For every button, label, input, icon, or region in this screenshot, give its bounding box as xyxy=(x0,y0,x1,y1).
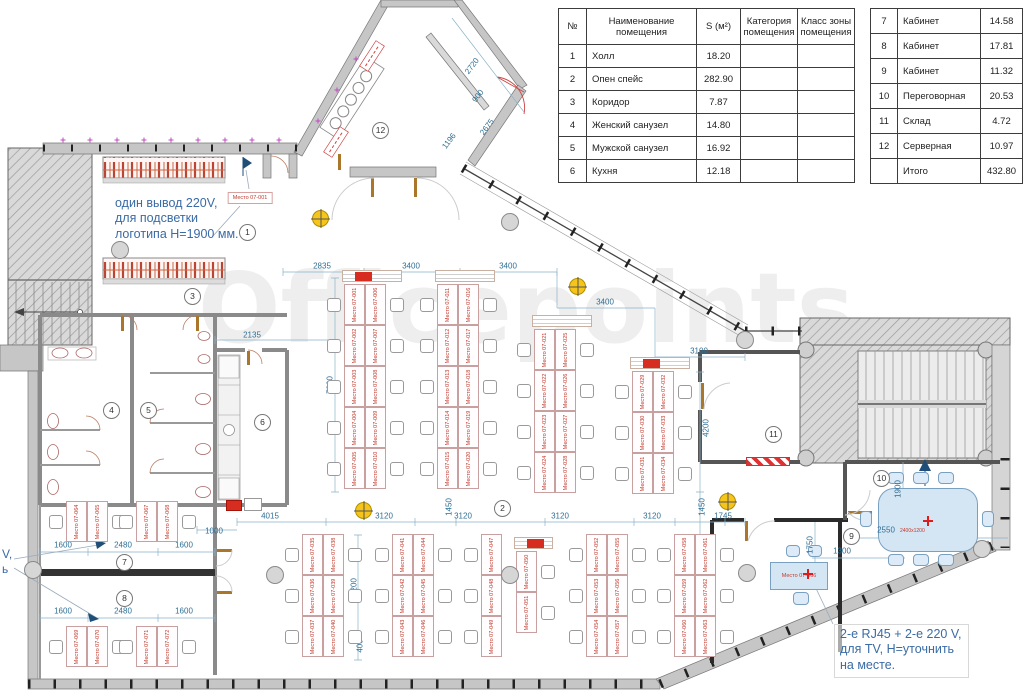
desk: Место 07-062 xyxy=(695,575,716,616)
desk-group-label-box xyxy=(630,357,690,369)
chair xyxy=(580,466,594,480)
desk-label: Место 07-058 xyxy=(682,537,688,572)
chair xyxy=(517,466,531,480)
desk-label: Место 07-015 xyxy=(445,451,451,486)
survey-marker xyxy=(569,278,586,295)
table-cell: 7.87 xyxy=(697,91,741,114)
chair xyxy=(375,548,389,562)
table-row: 3Коридор7.87 xyxy=(559,91,855,114)
chair xyxy=(420,380,434,394)
rooms-table-continued: 7Кабинет14.588Кабинет17.819Кабинет11.321… xyxy=(870,8,1023,184)
desk-group-label-box xyxy=(435,270,495,282)
desk-label: Место 07-025 xyxy=(563,332,569,367)
desk-label: Место 07-004 xyxy=(352,410,358,445)
desk: Место 07-058 xyxy=(674,534,695,575)
chair xyxy=(390,298,404,312)
desk-label: Место 07-003 xyxy=(352,369,358,404)
desk: Место 07-019 xyxy=(458,407,479,448)
chair xyxy=(615,426,629,440)
desk-label: Место 07-043 xyxy=(400,619,406,654)
chair xyxy=(420,462,434,476)
desk-label: Место 07-022 xyxy=(542,373,548,408)
table-cell xyxy=(798,137,855,160)
desk: Место 07-044 xyxy=(413,534,434,575)
dimension-label: 3400 xyxy=(596,298,614,307)
table-cell: 18.20 xyxy=(697,45,741,68)
structural-column xyxy=(736,331,754,349)
desk-label: Место 07-038 xyxy=(331,537,337,572)
structural-column xyxy=(501,566,519,584)
survey-marker xyxy=(719,493,736,510)
table-row: 11Склад4.72 xyxy=(871,109,1023,134)
desk: Место 07-063 xyxy=(695,616,716,657)
desk-label: Место 07-053 xyxy=(594,578,600,613)
desk-label: Место 07-072 xyxy=(165,629,171,664)
table-cell: 3 xyxy=(559,91,587,114)
chair xyxy=(657,589,671,603)
desk-label: Место 07-021 xyxy=(542,332,548,367)
room-number-circle: 8 xyxy=(116,590,133,607)
chair xyxy=(182,515,196,529)
equipment-marker xyxy=(226,500,242,511)
chair xyxy=(420,339,434,353)
table-cell: 8 xyxy=(871,34,898,59)
desk-label: Место 07-037 xyxy=(310,619,316,654)
dimension-label: 3120 xyxy=(375,512,393,521)
chair xyxy=(657,548,671,562)
desk: Место 07-015 xyxy=(437,448,458,489)
structural-column xyxy=(24,561,42,579)
desk-label: Место 07-060 xyxy=(682,619,688,654)
desk: Место 07-006 xyxy=(365,284,386,325)
desk: Место 07-036 xyxy=(302,575,323,616)
desk: Место 07-027 xyxy=(555,411,576,452)
table-cell xyxy=(798,160,855,183)
desk-label: Место 07-057 xyxy=(615,619,621,654)
desk: Место 07-043 xyxy=(392,616,413,657)
desk-label: Место 07-027 xyxy=(563,414,569,449)
chair xyxy=(632,589,646,603)
table-cell: Женский санузел xyxy=(587,114,697,137)
table-cell: 12 xyxy=(871,134,898,159)
table-row: 8Кабинет17.81 xyxy=(871,34,1023,59)
desk: Место 07-016 xyxy=(458,284,479,325)
desk-label: Место 07-048 xyxy=(489,578,495,613)
desk-label: Место 07-051 xyxy=(524,595,530,630)
chair xyxy=(438,548,452,562)
dimension-label: 4015 xyxy=(261,512,279,521)
dimension-label: 1196 xyxy=(440,131,458,150)
desk: Место 07-040 xyxy=(323,616,344,657)
desk-label: Место 07-028 xyxy=(563,455,569,490)
table-cell: Итого xyxy=(898,159,981,184)
table-cell xyxy=(798,68,855,91)
table-cell: 12.18 xyxy=(697,160,741,183)
table-cell: Мужской санузел xyxy=(587,137,697,160)
chair xyxy=(483,339,497,353)
chair xyxy=(119,640,133,654)
table-cell: 10 xyxy=(871,84,898,109)
desk-label: Место 07-001 xyxy=(352,287,358,322)
dimension-label: 2720 xyxy=(463,56,481,76)
dimension-label: 2135 xyxy=(243,331,261,340)
room-number-circle: 1 xyxy=(239,224,256,241)
desk-label: Место 07-011 xyxy=(445,287,451,321)
desk-group-red-marker xyxy=(355,272,372,281)
table-cell xyxy=(741,114,798,137)
chair xyxy=(580,425,594,439)
dimension-label: 4200 xyxy=(702,419,711,437)
table-cell xyxy=(741,68,798,91)
dimension-label: 3400 xyxy=(402,262,420,271)
chair xyxy=(632,630,646,644)
chair xyxy=(285,630,299,644)
chair xyxy=(327,421,341,435)
desk-label: Место 07-056 xyxy=(615,578,621,613)
room-number-circle: 3 xyxy=(184,288,201,305)
chair xyxy=(327,380,341,394)
desk-label: Место 07-039 xyxy=(331,578,337,613)
table-row: 5Мужской санузел16.92 xyxy=(559,137,855,160)
chair xyxy=(517,343,531,357)
room-number-circle: 9 xyxy=(843,528,860,545)
room-number-circle: 2 xyxy=(494,500,511,517)
chair xyxy=(375,630,389,644)
desk: Место 07-070 xyxy=(87,626,108,667)
room-number-circle: 10 xyxy=(873,470,890,487)
dimension-label: 3400 xyxy=(499,262,517,271)
chair xyxy=(119,515,133,529)
dimension-label: 900 xyxy=(470,88,485,104)
table-cell xyxy=(798,114,855,137)
chair xyxy=(569,630,583,644)
dimension-label: 3120 xyxy=(643,512,661,521)
table-cell: Холл xyxy=(587,45,697,68)
annotation-line: 2-е RJ45 + 2-е 220 V, xyxy=(840,627,962,642)
desk-label: Место 07-064 xyxy=(74,504,80,539)
table-cell: Переговорная xyxy=(898,84,981,109)
desk: Место 07-064 xyxy=(66,501,87,542)
chair xyxy=(420,298,434,312)
desk: Место 07-014 xyxy=(437,407,458,448)
desk-label: Место 07-033 xyxy=(661,415,667,450)
table-cell xyxy=(741,160,798,183)
chair xyxy=(483,298,497,312)
table-cell xyxy=(741,45,798,68)
desk: Место 07-030 xyxy=(632,412,653,453)
desk: Место 07-057 xyxy=(607,616,628,657)
table-cell: 11.32 xyxy=(981,59,1023,84)
table-cell: 14.58 xyxy=(981,9,1023,34)
structural-column xyxy=(973,540,991,558)
desk: Место 07-005 xyxy=(344,448,365,489)
chair xyxy=(49,640,63,654)
table-header-cell: Класс зоны помещения xyxy=(798,9,855,45)
desk-label: Место 07-044 xyxy=(421,537,427,572)
desk-label: Место 07-008 xyxy=(373,369,379,404)
table-cell: 10.97 xyxy=(981,134,1023,159)
room-number-circle: 12 xyxy=(372,122,389,139)
desk: Место 07-031 xyxy=(632,453,653,494)
room-number-circle: 7 xyxy=(116,554,133,571)
chair xyxy=(390,462,404,476)
desk: Место 07-039 xyxy=(323,575,344,616)
desk-label: Место 07-002 xyxy=(352,328,358,363)
desk: Место 07-007 xyxy=(365,325,386,366)
desk-label: Место 07-035 xyxy=(310,537,316,572)
hazard-marker xyxy=(746,457,790,466)
dimension-label: 1450 xyxy=(698,498,707,516)
table-cell xyxy=(741,137,798,160)
desk: Место 07-071 xyxy=(136,626,157,667)
desk-label: Место 07-005 xyxy=(352,451,358,486)
desk: Место 07-032 xyxy=(653,371,674,412)
chair xyxy=(327,339,341,353)
desk: Место 07-059 xyxy=(674,575,695,616)
dimension-label: 1750 xyxy=(806,536,815,554)
desk: Место 07-072 xyxy=(157,626,178,667)
desk-label: Место 07-014 xyxy=(445,410,451,445)
table-row: 6Кухня12.18 xyxy=(559,160,855,183)
chair xyxy=(569,548,583,562)
chair xyxy=(632,548,646,562)
table-header-cell: S (м²) xyxy=(697,9,741,45)
desk: Место 07-001 xyxy=(344,284,365,325)
chair xyxy=(464,589,478,603)
desk: Место 07-025 xyxy=(555,329,576,370)
chair xyxy=(483,380,497,394)
dimension-label: 1300 xyxy=(833,547,851,556)
equipment-label-box xyxy=(244,498,262,511)
chair xyxy=(390,421,404,435)
annotation-line: для TV, H=уточнить xyxy=(840,642,962,657)
annotation-line: ь xyxy=(2,562,12,577)
desk-label: Место 07-026 xyxy=(563,373,569,408)
room-number-circle: 4 xyxy=(103,402,120,419)
desk: Место 07-028 xyxy=(555,452,576,493)
desk: Место 07-067 xyxy=(136,501,157,542)
desk-label: Место 07-047 xyxy=(489,537,495,572)
chair xyxy=(348,630,362,644)
table-cell: Коридор xyxy=(587,91,697,114)
dimension-label: 1600 xyxy=(54,607,72,616)
structural-column xyxy=(738,564,756,582)
table-row: 7Кабинет14.58 xyxy=(871,9,1023,34)
dimension-label: 2550 xyxy=(877,526,895,535)
desk-label: Место 07-069 xyxy=(74,629,80,664)
table-cell: 4.72 xyxy=(981,109,1023,134)
desk: Место 07-026 xyxy=(555,370,576,411)
dimension-label: 2480 xyxy=(114,607,132,616)
dimension-label: 3120 xyxy=(454,512,472,521)
dimension-label: 1450 xyxy=(445,498,454,516)
desk-label: Место 07-054 xyxy=(594,619,600,654)
table-row: 12Серверная10.97 xyxy=(871,134,1023,159)
dimension-label: 2480 xyxy=(114,541,132,550)
desk: Место 07-035 xyxy=(302,534,323,575)
chair xyxy=(390,339,404,353)
annotation-line: для подсветки xyxy=(115,211,239,226)
desk: Место 07-052 xyxy=(586,534,607,575)
desk: Место 07-029 xyxy=(632,371,653,412)
table-row: 10Переговорная20.53 xyxy=(871,84,1023,109)
chair xyxy=(615,385,629,399)
desk-label: Место 07-031 xyxy=(640,456,646,491)
table-cell: 9 xyxy=(871,59,898,84)
chair xyxy=(720,548,734,562)
table-cell: 432.80 xyxy=(981,159,1023,184)
chair xyxy=(517,384,531,398)
dimension-label: 1900 xyxy=(894,480,903,498)
desk-label: Место 07-052 xyxy=(594,537,600,572)
table-cell: 5 xyxy=(559,137,587,160)
desk-label: Место 07-041 xyxy=(400,537,406,572)
desk-label: Место 07-034 xyxy=(661,456,667,491)
desk-label: Место 07-068 xyxy=(165,504,171,539)
chair xyxy=(720,589,734,603)
desk: Место 07-011 xyxy=(437,284,458,325)
chair xyxy=(517,425,531,439)
desk: Место 07-013 xyxy=(437,366,458,407)
dimension-label: 3100 xyxy=(690,347,708,356)
table-cell: Кабинет xyxy=(898,9,981,34)
desk-label: Место 07-012 xyxy=(445,328,451,363)
table-header-cell: № xyxy=(559,9,587,45)
table-row: Итого432.80 xyxy=(871,159,1023,184)
desk-label: Место 07-024 xyxy=(542,455,548,490)
desk: Место 07-008 xyxy=(365,366,386,407)
annotation-line: логотипа H=1900 мм. xyxy=(115,227,239,242)
desk-label: Место 07-070 xyxy=(95,629,101,664)
table-header-cell: Наименование помещения xyxy=(587,9,697,45)
desk-label: Место 07-032 xyxy=(661,374,667,409)
table-cell xyxy=(741,91,798,114)
table-cell xyxy=(798,45,855,68)
annotation-line: на месте. xyxy=(840,658,962,673)
desk-label: Место 07-045 xyxy=(421,578,427,613)
desk-group-label-box xyxy=(342,270,402,282)
desk-label: Место 07-019 xyxy=(466,410,472,445)
table-row: 1Холл18.20 xyxy=(559,45,855,68)
dimension-label: 1000 xyxy=(205,527,223,536)
desk: Место 07-046 xyxy=(413,616,434,657)
desk-label: Место 07-050 xyxy=(524,554,530,589)
desk-label: Место 07-065 xyxy=(95,504,101,539)
desk: Место 07-065 xyxy=(87,501,108,542)
chair xyxy=(678,426,692,440)
desk: Место 07-068 xyxy=(157,501,178,542)
desk: Место 07-024 xyxy=(534,452,555,493)
chair xyxy=(483,462,497,476)
desk: Место 07-022 xyxy=(534,370,555,411)
chair xyxy=(678,467,692,481)
chair xyxy=(569,589,583,603)
desk-group-label-box xyxy=(514,537,553,549)
chair xyxy=(580,384,594,398)
table-cell: 2 xyxy=(559,68,587,91)
room-number-circle: 11 xyxy=(765,426,782,443)
desk-label: Место 07-067 xyxy=(144,504,150,539)
structural-column xyxy=(501,213,519,231)
chair xyxy=(678,385,692,399)
desk-group-red-marker xyxy=(527,539,544,548)
dimension-label: 1745 xyxy=(714,512,732,521)
desk-label: Место 07-059 xyxy=(682,578,688,613)
structural-column xyxy=(266,566,284,584)
desk: Место 07-041 xyxy=(392,534,413,575)
chair xyxy=(438,630,452,644)
room-number-circle: 6 xyxy=(254,414,271,431)
desk: Место 07-053 xyxy=(586,575,607,616)
survey-marker xyxy=(355,502,372,519)
table-cell xyxy=(871,159,898,184)
table-cell: 6 xyxy=(559,160,587,183)
table-cell: 7 xyxy=(871,9,898,34)
chair xyxy=(464,630,478,644)
desk: Место 07-069 xyxy=(66,626,87,667)
chair xyxy=(615,467,629,481)
table-cell: Кабинет xyxy=(898,34,981,59)
desk-label: Место 07-007 xyxy=(373,328,379,363)
table-row: 9Кабинет11.32 xyxy=(871,59,1023,84)
table-cell: Кабинет xyxy=(898,59,981,84)
chair xyxy=(348,589,362,603)
desk-label: Место 07-009 xyxy=(373,410,379,445)
table-cell: 20.53 xyxy=(981,84,1023,109)
chair xyxy=(285,589,299,603)
desk-group-label-box xyxy=(532,315,592,327)
table-cell: Опен спейс xyxy=(587,68,697,91)
desk-label: Место 07-013 xyxy=(445,369,451,404)
table-cell xyxy=(798,91,855,114)
chair xyxy=(327,462,341,476)
chair xyxy=(720,630,734,644)
desk-label: Место 07-018 xyxy=(466,369,472,404)
room-number-circle: 5 xyxy=(140,402,157,419)
desk: Место 07-020 xyxy=(458,448,479,489)
annotation-line: один вывод 220V, xyxy=(115,196,239,211)
desk-label: Место 07-030 xyxy=(640,415,646,450)
rooms-table: №Наименование помещенияS (м²)Категория п… xyxy=(558,8,855,183)
desk-label: Место 07-016 xyxy=(466,287,472,322)
desk: Место 07-017 xyxy=(458,325,479,366)
desk: Место 07-009 xyxy=(365,407,386,448)
desk: Место 07-012 xyxy=(437,325,458,366)
dimension-label: 1600 xyxy=(175,607,193,616)
desk: Место 07-049 xyxy=(481,616,502,657)
table-cell: 4 xyxy=(559,114,587,137)
desk-label: Место 07-046 xyxy=(421,619,427,654)
desk: Место 07-038 xyxy=(323,534,344,575)
table-row: 4Женский санузел14.80 xyxy=(559,114,855,137)
table-header-cell: Категория помещения xyxy=(741,9,798,45)
desk: Место 07-003 xyxy=(344,366,365,407)
desk-label: Место 07-006 xyxy=(373,287,379,322)
desk-label: Место 07-049 xyxy=(489,619,495,654)
annotation-line: V, xyxy=(2,547,12,562)
desk-group-red-marker xyxy=(643,359,660,368)
desk: Место 07-060 xyxy=(674,616,695,657)
desk: Место 07-004 xyxy=(344,407,365,448)
table-row: 2Опен спейс282.90 xyxy=(559,68,855,91)
chair xyxy=(580,343,594,357)
desk: Место 07-047 xyxy=(481,534,502,575)
desk-label: Место 07-017 xyxy=(466,328,472,363)
desk-label: Место 07-055 xyxy=(615,537,621,572)
chair xyxy=(438,589,452,603)
table-cell: 14.80 xyxy=(697,114,741,137)
dimension-label: 2835 xyxy=(313,262,331,271)
